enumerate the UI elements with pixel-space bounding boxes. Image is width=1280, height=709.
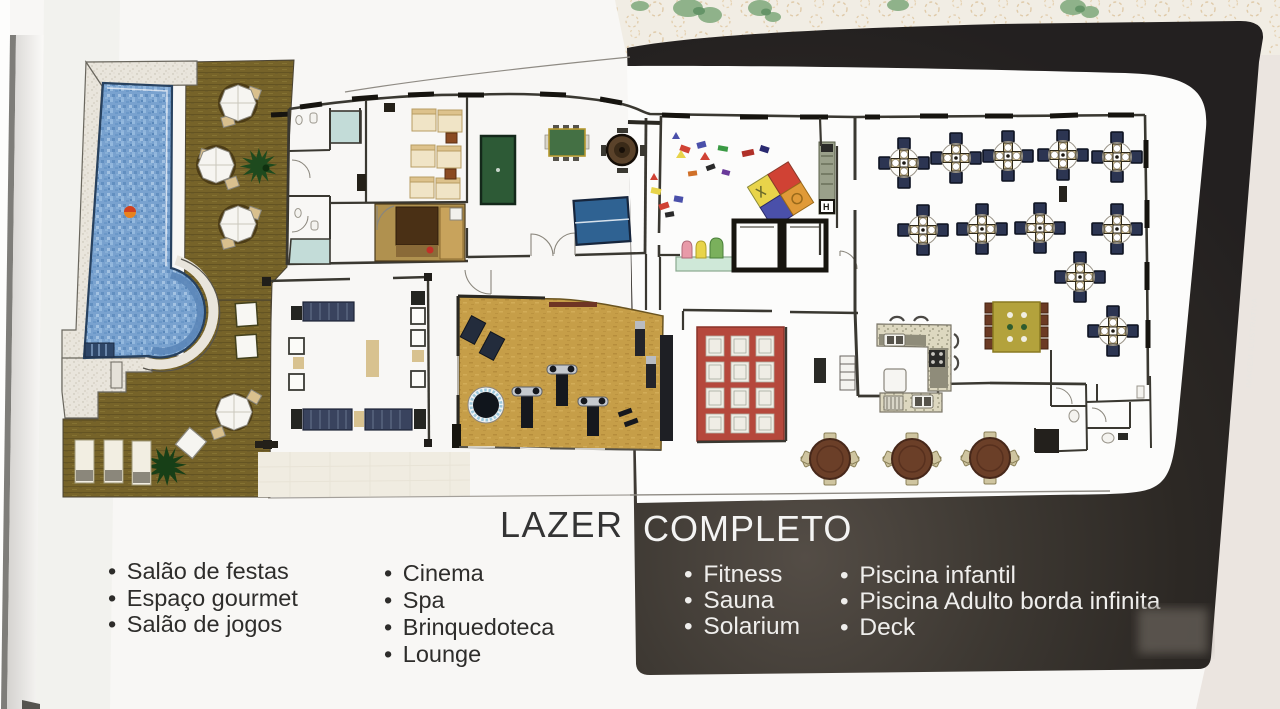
svg-text:• Piscina infantil: • Piscina infantil [840,562,1016,589]
svg-text:• Sauna: • Sauna [684,587,775,614]
svg-text:• Brinquedoteca: • Brinquedoteca [384,614,555,640]
svg-text:• Spa: • Spa [384,587,446,613]
svg-text:• Fitness: • Fitness [684,561,782,588]
svg-text:• Espaço gourmet: • Espaço gourmet [108,585,298,611]
svg-text:• Deck: • Deck [840,614,916,641]
svg-text:• Lounge: • Lounge [384,641,481,667]
svg-text:• Salão de festas: • Salão de festas [108,558,289,584]
svg-text:COMPLETO: COMPLETO [643,508,852,549]
svg-text:• Piscina Adulto borda infinit: • Piscina Adulto borda infinita [840,588,1161,615]
svg-text:H: H [823,202,830,212]
svg-text:• Salão de jogos: • Salão de jogos [108,611,282,637]
svg-text:LAZER: LAZER [500,504,624,545]
